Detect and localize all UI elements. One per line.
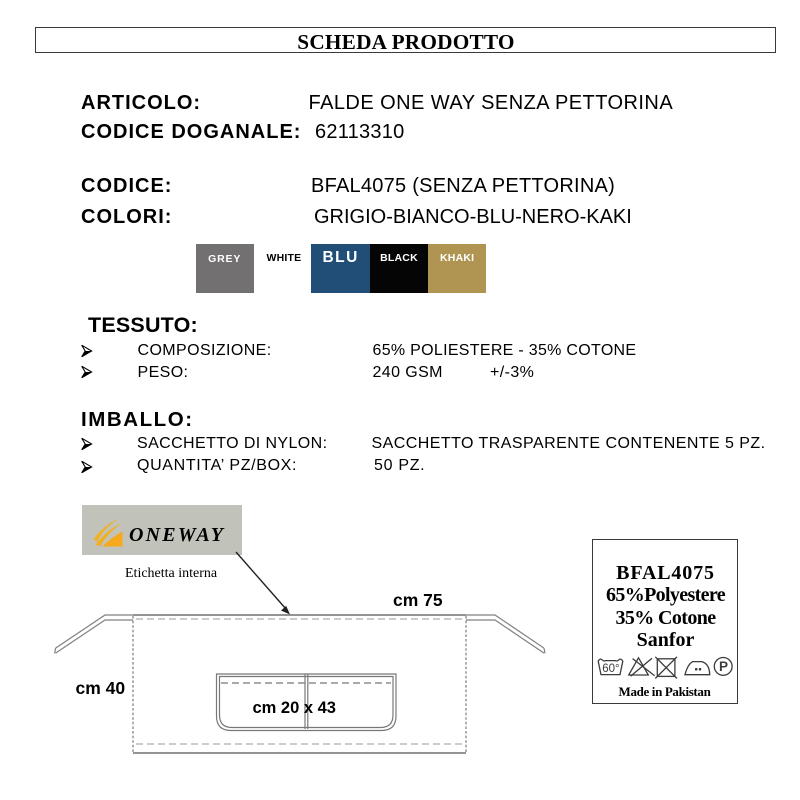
svg-text:60°: 60° — [602, 663, 619, 675]
svg-text:P: P — [719, 659, 728, 674]
